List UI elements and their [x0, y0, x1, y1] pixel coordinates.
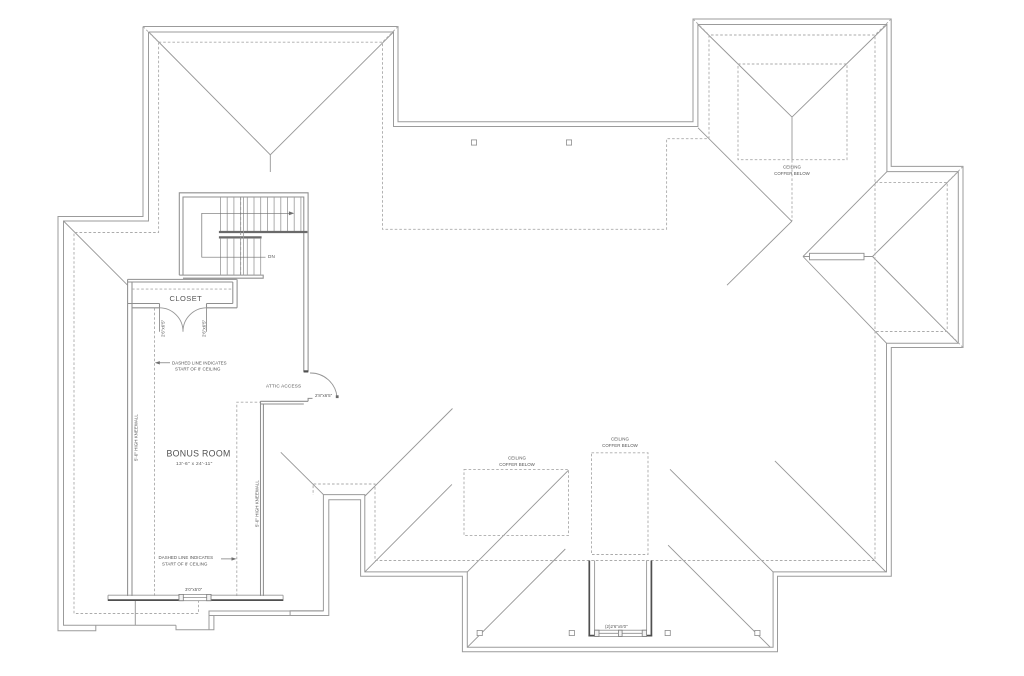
svg-text:COFFER BELOW: COFFER BELOW: [602, 443, 639, 448]
svg-text:CEILING: CEILING: [783, 165, 801, 170]
svg-text:(2)2'6"x5'0": (2)2'6"x5'0": [605, 624, 628, 629]
svg-text:5'-0" HIGH KNEEWALL: 5'-0" HIGH KNEEWALL: [134, 414, 139, 461]
svg-text:CEILING: CEILING: [508, 456, 526, 461]
svg-text:DASHED LINE INDICATES: DASHED LINE INDICATES: [172, 361, 227, 366]
svg-text:13'-6" x 24'-11": 13'-6" x 24'-11": [176, 461, 213, 467]
svg-text:2'6"x6'5": 2'6"x6'5": [160, 319, 165, 337]
svg-text:DASHED LINE INDICATES: DASHED LINE INDICATES: [159, 555, 214, 560]
svg-text:2'8"x6'5": 2'8"x6'5": [315, 393, 333, 398]
svg-text:COFFER BELOW: COFFER BELOW: [774, 171, 811, 176]
svg-text:DN: DN: [268, 254, 275, 259]
svg-text:3'0"x5'0": 3'0"x5'0": [185, 587, 203, 592]
svg-text:COFFER BELOW: COFFER BELOW: [499, 462, 536, 467]
svg-text:START OF 8' CEILING: START OF 8' CEILING: [175, 367, 221, 372]
svg-text:START OF 8' CEILING: START OF 8' CEILING: [162, 562, 208, 567]
svg-text:CLOSET: CLOSET: [170, 294, 203, 303]
svg-text:5'-0" HIGH KNEEWALL: 5'-0" HIGH KNEEWALL: [255, 480, 260, 527]
svg-text:ATTIC ACCESS: ATTIC ACCESS: [266, 384, 301, 389]
svg-text:BONUS ROOM: BONUS ROOM: [167, 449, 231, 459]
svg-text:2'6"x6'5": 2'6"x6'5": [202, 319, 207, 337]
svg-text:CEILING: CEILING: [611, 437, 629, 442]
